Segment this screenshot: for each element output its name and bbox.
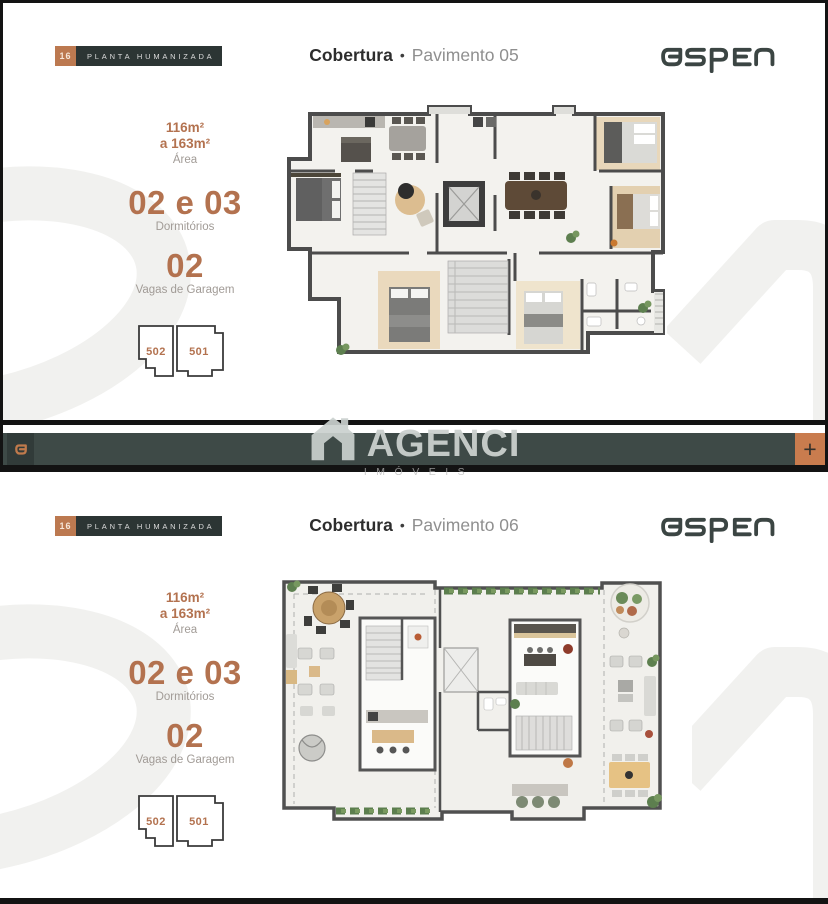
garage-value: 02 xyxy=(108,719,262,752)
stairs xyxy=(353,173,386,235)
unit-number: 502 xyxy=(146,346,166,358)
area-label: Área xyxy=(108,624,262,636)
bedroom-bed xyxy=(291,173,341,221)
divider-black-strip-top xyxy=(0,420,828,425)
zoom-plus-button[interactable]: + xyxy=(795,433,825,465)
background-word-text: aspen xyxy=(0,472,1,473)
area-value: 116m² a 163m² xyxy=(108,120,262,152)
floorplan-pavimento-05 xyxy=(277,101,667,373)
info-panel: 116m² a 163m² Área 02 e 03 Dormitórios 0… xyxy=(108,590,262,852)
garage-value: 02 xyxy=(108,249,262,282)
aspen-logo-glyphs xyxy=(659,512,777,543)
aspen-logo: aspen xyxy=(659,42,777,78)
dining-table-small xyxy=(389,117,426,160)
title-bold: Cobertura xyxy=(309,515,393,535)
divider-bar: a + xyxy=(0,433,828,465)
garage-label: Vagas de Garagem xyxy=(108,754,262,766)
title-separator: • xyxy=(400,47,405,63)
dorms-value: 02 e 03 xyxy=(108,186,262,219)
unit-key-plan: 502 501 xyxy=(133,320,237,382)
elevator xyxy=(443,181,485,227)
title-bold: Cobertura xyxy=(309,45,393,65)
background-word-text: aspen xyxy=(0,2,1,3)
info-panel: 116m² a 163m² Área 02 e 03 Dormitórios 0… xyxy=(108,120,262,382)
divider-black-strip-bottom xyxy=(0,465,828,472)
unit-key-plan: 502 501 xyxy=(133,790,237,852)
orange-chair xyxy=(563,758,573,768)
dorms-label: Dormitórios xyxy=(108,691,262,703)
area-value: 116m² a 163m² xyxy=(108,590,262,622)
stairs-lower xyxy=(448,261,508,333)
unit-number: 501 xyxy=(189,346,209,358)
bottom-black-strip xyxy=(0,898,828,904)
indoor-core-right xyxy=(510,620,580,756)
title-regular: Pavimento 05 xyxy=(412,45,519,65)
dorms-label: Dormitórios xyxy=(108,221,262,233)
aspen-a-icon xyxy=(14,441,28,458)
indoor-core-left xyxy=(360,618,435,770)
bedroom-bed xyxy=(524,291,563,344)
garage-label: Vagas de Garagem xyxy=(108,284,262,296)
bedroom-bed xyxy=(604,122,657,163)
unit-number: 502 xyxy=(146,816,166,828)
area-label: Área xyxy=(108,154,262,166)
aspen-logo-glyphs xyxy=(659,42,777,73)
panel-pavimento-05: aspen 16 PLANTA HUMANIZADA Cobertura•Pav… xyxy=(0,2,828,420)
title-regular: Pavimento 06 xyxy=(412,515,519,535)
unit-number: 501 xyxy=(189,816,209,828)
bedroom-bed xyxy=(389,287,430,342)
floorplan-pavimento-06 xyxy=(272,570,692,842)
dorms-value: 02 e 03 xyxy=(108,656,262,689)
panel-pavimento-06: aspen 16 PLANTA HUMANIZADA Cobertura•Pav… xyxy=(0,472,828,898)
aspen-mark: a xyxy=(7,433,34,465)
aspen-logo: aspen xyxy=(659,512,777,548)
title-separator: • xyxy=(400,517,405,533)
brochure-page: aspen 16 PLANTA HUMANIZADA Cobertura•Pav… xyxy=(0,0,828,904)
